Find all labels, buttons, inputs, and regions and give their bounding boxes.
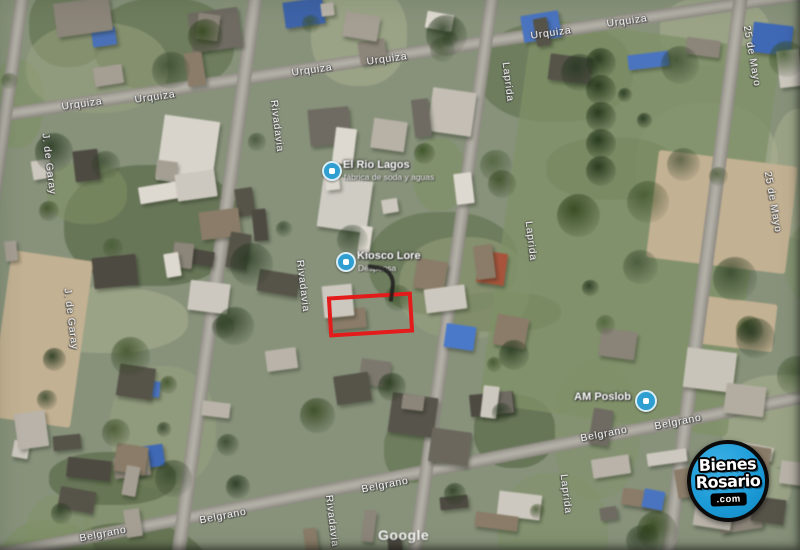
tree [561,54,599,92]
tree [414,143,435,164]
building [427,87,477,137]
google-watermark: Google [378,527,429,543]
building [174,169,218,201]
tree [586,102,616,132]
building [251,209,269,242]
building [411,99,432,138]
building [302,527,319,550]
poi-marker-icon [322,161,342,181]
poi-label: El Rio Lagos [343,159,410,171]
tree [769,41,800,77]
tree [637,511,677,550]
tree [736,318,776,358]
building [66,456,112,481]
building [52,434,82,451]
poi-label: AM Poslob [574,391,631,403]
tree [713,257,757,301]
poi-glyph [643,398,649,404]
tree [276,221,292,237]
tree [103,238,123,258]
tree [152,52,190,90]
poi-marker-icon [635,390,657,412]
tree [492,403,512,423]
building [428,427,472,466]
poi-sublabel: fábrica de soda y aguas [344,172,434,182]
tree [39,201,59,221]
building [4,241,18,262]
building [402,393,426,411]
tree [155,460,192,497]
tree [248,133,265,150]
building [13,410,49,450]
tree [637,113,652,128]
poi-glyph [343,259,349,265]
poi-glyph [329,168,335,174]
building [201,400,230,418]
building [381,197,399,213]
building [723,383,766,418]
tree [582,280,598,296]
logo-text-com: .com [710,492,747,506]
tree [557,194,600,237]
poi-label: Kiosco Lore [357,250,421,262]
building [423,284,466,313]
tree [302,15,320,33]
tree [378,373,406,401]
building [91,254,138,289]
tree [586,129,616,159]
tree [226,475,250,499]
tree [160,376,178,394]
building [443,323,476,351]
poi-marker-icon [336,252,356,272]
building [333,372,372,406]
tree [623,250,658,285]
satellite-map-image: UrquizaUrquizaUrquizaUrquizaUrquizaUrqui… [0,0,800,550]
building [265,347,299,372]
satellite-terrain [0,0,800,550]
tree [111,337,150,376]
tree [37,390,57,410]
tree [51,503,72,524]
tree [426,15,467,56]
tree [487,357,502,372]
tree [217,434,239,456]
tree [188,19,223,54]
tree [230,243,273,286]
building [641,488,665,510]
logo-text-rosario: Rosario [695,472,760,491]
tree [586,156,616,186]
building [320,2,335,17]
tree [300,398,334,432]
tree [596,315,615,334]
building [453,172,475,205]
building [360,510,376,543]
building [599,506,618,521]
building [779,460,800,486]
building [93,63,124,86]
building [370,118,408,152]
tree [530,504,545,519]
